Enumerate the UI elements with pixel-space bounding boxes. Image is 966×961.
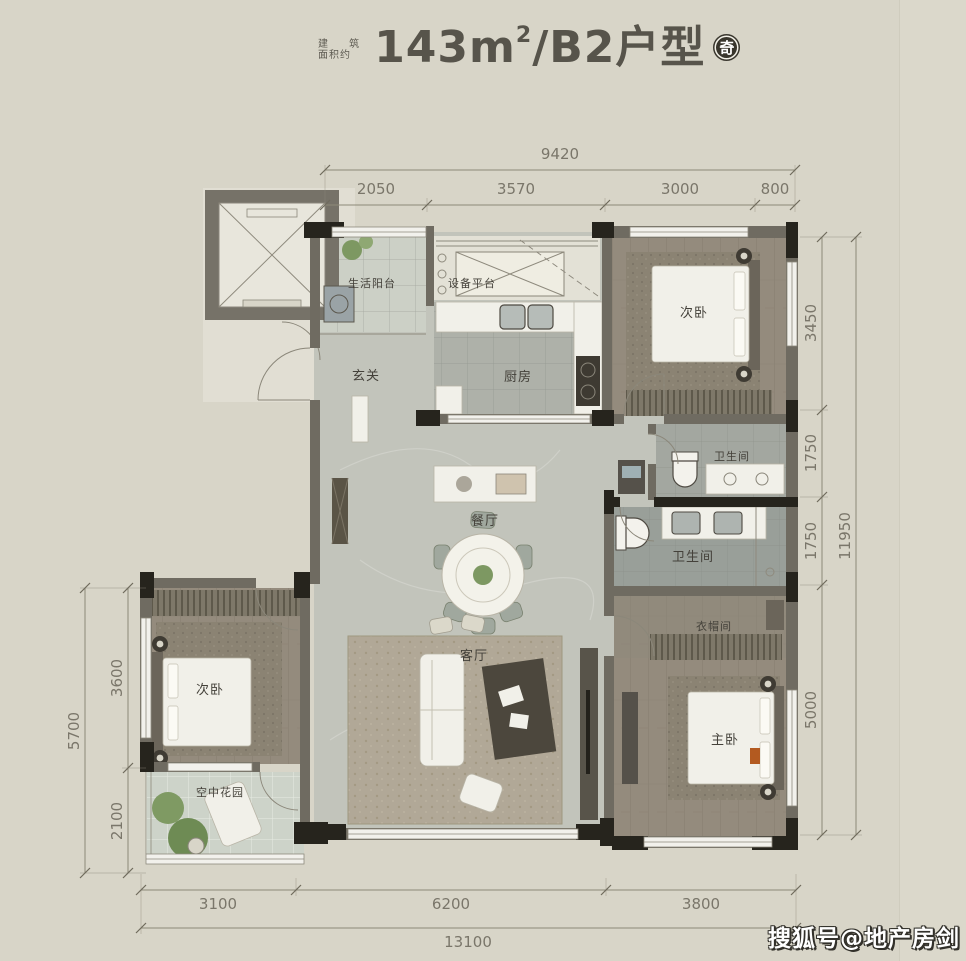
cloak-wardrobe — [650, 634, 782, 660]
label-living: 客厅 — [460, 648, 488, 664]
sink — [672, 512, 700, 534]
dim-top-seg: 3570 — [497, 180, 535, 198]
label-cloakroom: 衣帽间 — [696, 619, 732, 633]
sink — [528, 305, 553, 329]
tv — [586, 690, 590, 774]
coffee-table — [482, 658, 556, 760]
label-bath-mid: 卫生间 — [672, 550, 714, 565]
toilet — [673, 461, 697, 487]
entry-screen — [332, 478, 348, 544]
dim-right-seg: 3450 — [802, 304, 820, 342]
sink — [714, 512, 742, 534]
wardrobe — [626, 390, 772, 416]
dim-right: 3450 1750 1750 5000 11950 — [802, 232, 861, 840]
living-set — [348, 614, 598, 824]
plant — [152, 792, 184, 824]
plant — [342, 240, 362, 260]
dim-right-seg: 5000 — [802, 691, 820, 729]
label-dining: 餐厅 — [471, 513, 499, 529]
dim-top-seg: 2050 — [357, 180, 395, 198]
sink — [500, 305, 525, 329]
dining-set — [434, 466, 536, 634]
label-bedroom-left: 次卧 — [196, 682, 224, 698]
dim-left-seg: 3600 — [108, 659, 126, 697]
label-master: 主卧 — [711, 733, 739, 748]
dim-top-total: 9420 — [541, 145, 579, 163]
accent-pillow — [750, 748, 760, 764]
shoe-cabinet — [352, 396, 368, 442]
label-bedroom-top: 次卧 — [680, 305, 708, 321]
washing-machine — [324, 286, 354, 322]
label-life-balcony: 生活阳台 — [348, 276, 396, 290]
cabinet — [766, 600, 784, 630]
dim-bottom-seg: 3100 — [199, 895, 237, 913]
dim-top-seg: 3000 — [661, 180, 699, 198]
label-foyer: 玄关 — [352, 369, 380, 384]
dim-bottom-total: 13100 — [444, 933, 492, 951]
label-bath-top: 卫生间 — [714, 449, 750, 463]
dim-bottom-seg: 6200 — [432, 895, 470, 913]
dim-right-seg: 1750 — [802, 434, 820, 472]
dim-right-total: 11950 — [836, 512, 854, 560]
dim-top-seg: 800 — [761, 180, 790, 198]
label-sky-garden: 空中花园 — [196, 785, 244, 799]
vanity — [706, 464, 784, 494]
label-kitchen: 厨房 — [504, 369, 532, 385]
centerpiece-plant — [473, 565, 493, 585]
floor-plan: 生活阳台 设备平台 玄关 厨房 次卧 卫生间 餐厅 卫生间 衣帽间 客厅 次卧 … — [0, 0, 966, 961]
label-equipment: 设备平台 — [448, 276, 496, 290]
tv-panel — [622, 692, 638, 784]
dim-bottom-seg: 3800 — [682, 895, 720, 913]
stool — [429, 616, 453, 635]
watermark: 搜狐号@地产房剑 — [768, 919, 960, 953]
dim-bottom: 3100 6200 3800 13100 — [136, 885, 801, 951]
dim-left-total: 5700 — [65, 712, 83, 750]
wardrobe — [152, 590, 304, 616]
dim-left-seg: 2100 — [108, 802, 126, 840]
dim-right-seg: 1750 — [802, 522, 820, 560]
dim-top: 9420 2050 3570 3000 800 — [320, 145, 800, 210]
dim-left: 3600 2100 5700 — [65, 583, 133, 878]
